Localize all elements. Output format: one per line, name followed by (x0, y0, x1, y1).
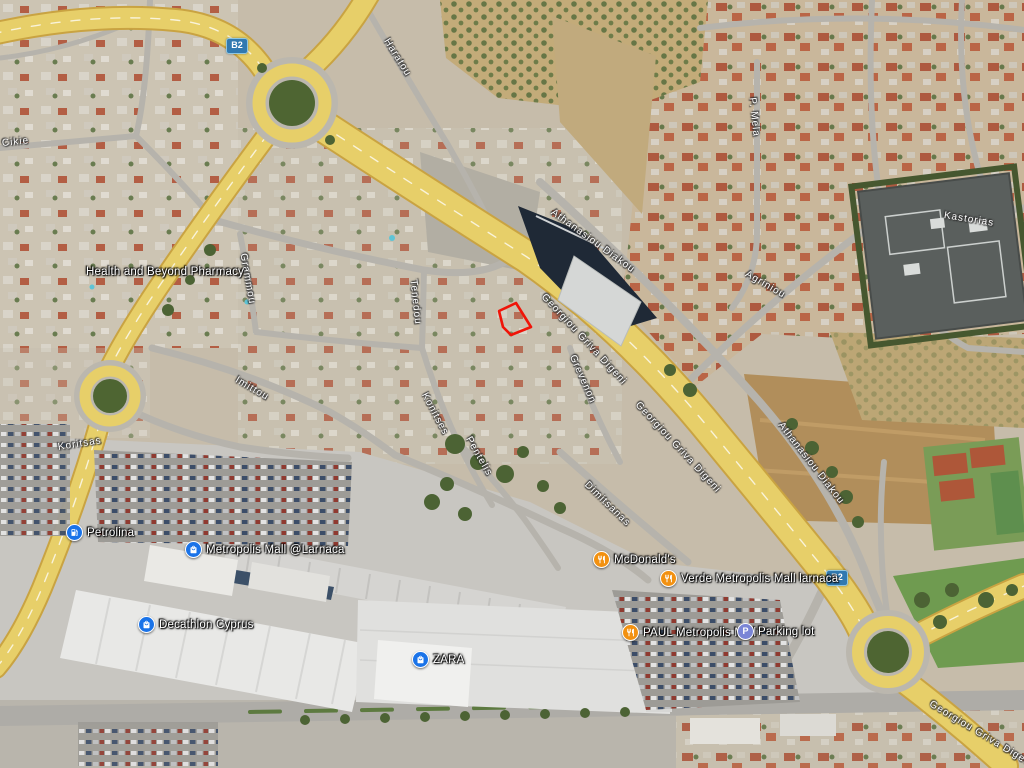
satellite-map[interactable]: Haratou Athanasiou Diakou Georgiou Griva… (0, 0, 1024, 768)
street-label: P. Mela (747, 97, 762, 138)
street-label: Georgiou Griva Digeni (633, 400, 723, 495)
street-label: Konitses (419, 391, 450, 437)
poi-metropolis-mall[interactable]: Metropolis Mall @Larnaca (185, 541, 345, 558)
shopping-poi-icon[interactable] (412, 651, 429, 668)
poi-mcdonalds[interactable]: McDonald's (593, 551, 676, 568)
poi-label[interactable]: McDonald's (614, 554, 676, 566)
street-label: Georgiou Griva Digeni (927, 699, 1024, 768)
poi-health-and-beyond-pharmacy[interactable]: Health and Beyond Pharmacy (86, 266, 244, 278)
poi-label[interactable]: Decathlon Cyprus (159, 619, 254, 631)
poi-label[interactable]: Verde Metropolis Mall larnaca (681, 573, 838, 585)
street-label: Tenedou (408, 279, 424, 325)
route-badge-b2: B2 (226, 38, 248, 54)
poi-parking-lot[interactable]: P Parking lot (737, 623, 815, 640)
fuel-poi-icon[interactable] (66, 524, 83, 541)
street-label: Agriniou (743, 269, 787, 301)
poi-verde-metropolis-mall[interactable]: Verde Metropolis Mall larnaca (660, 570, 838, 587)
restaurant-poi-icon[interactable] (660, 570, 677, 587)
poi-zara[interactable]: ZARA (412, 651, 464, 668)
street-label: Athanasiou Diakou (549, 207, 637, 275)
restaurant-poi-icon[interactable] (622, 624, 639, 641)
street-label: Haratou (381, 37, 413, 79)
poi-label[interactable]: Health and Beyond Pharmacy (86, 266, 244, 278)
restaurant-poi-icon[interactable] (593, 551, 610, 568)
street-label: Cikie (1, 135, 29, 149)
poi-label[interactable]: Parking lot (758, 626, 815, 638)
poi-label[interactable]: ZARA (433, 654, 464, 666)
street-label: Grevenon (567, 353, 598, 405)
map-labels-overlay: Haratou Athanasiou Diakou Georgiou Griva… (0, 0, 1024, 768)
street-label: Pentelis (463, 435, 494, 478)
parking-poi-icon[interactable]: P (737, 623, 754, 640)
poi-petrolina[interactable]: Petrolina (66, 524, 134, 541)
poi-decathlon[interactable]: Decathlon Cyprus (138, 616, 254, 633)
street-label: Imittou (233, 375, 271, 403)
street-label: Dimitsanas (582, 480, 632, 529)
poi-label[interactable]: Metropolis Mall @Larnaca (206, 544, 345, 556)
shopping-poi-icon[interactable] (138, 616, 155, 633)
street-label: Kastorias (943, 210, 995, 229)
poi-label[interactable]: Petrolina (87, 527, 134, 539)
street-label: Koritsas (57, 435, 102, 453)
street-label: Grammou (238, 253, 258, 306)
street-label: Athanasiou Diakou (776, 420, 847, 506)
shopping-poi-icon[interactable] (185, 541, 202, 558)
